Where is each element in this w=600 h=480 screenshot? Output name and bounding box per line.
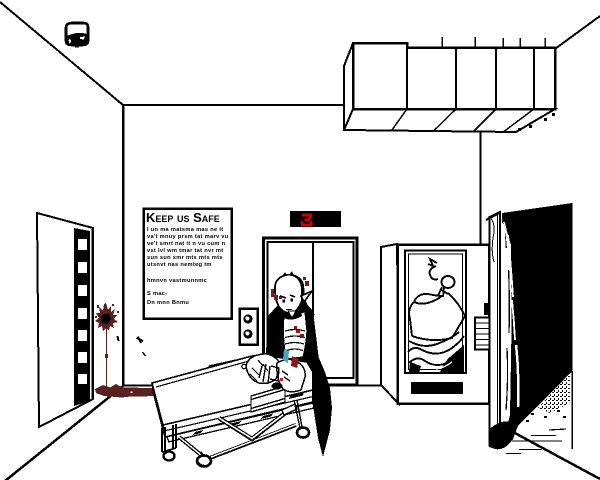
svg-text:hmnvn vastmunnmc: hmnvn vastmunnmc xyxy=(147,278,207,284)
svg-text:va't mnuy prsm tat marv vu: va't mnuy prsm tat marv vu xyxy=(147,234,229,240)
svg-text:sun sun smr mts mts mts: sun sun smr mts mts mts xyxy=(147,255,223,261)
svg-text:ve't smrt nat it n vu cum n: ve't smrt nat it n vu cum n xyxy=(147,241,226,247)
svg-text:S mac-: S mac- xyxy=(147,291,167,297)
svg-text:utsnvt nas nemteg tm: utsnvt nas nemteg tm xyxy=(147,262,212,268)
svg-text:Dn mnn Bnmu: Dn mnn Bnmu xyxy=(147,300,189,306)
svg-text:Keep us Safe: Keep us Safe xyxy=(146,210,220,225)
svg-text:vst lvl wm tmar tat nvr mt: vst lvl wm tmar tat nvr mt xyxy=(147,248,223,254)
svg-text:I un ma matsma mas ne it: I un ma matsma mas ne it xyxy=(147,227,223,233)
